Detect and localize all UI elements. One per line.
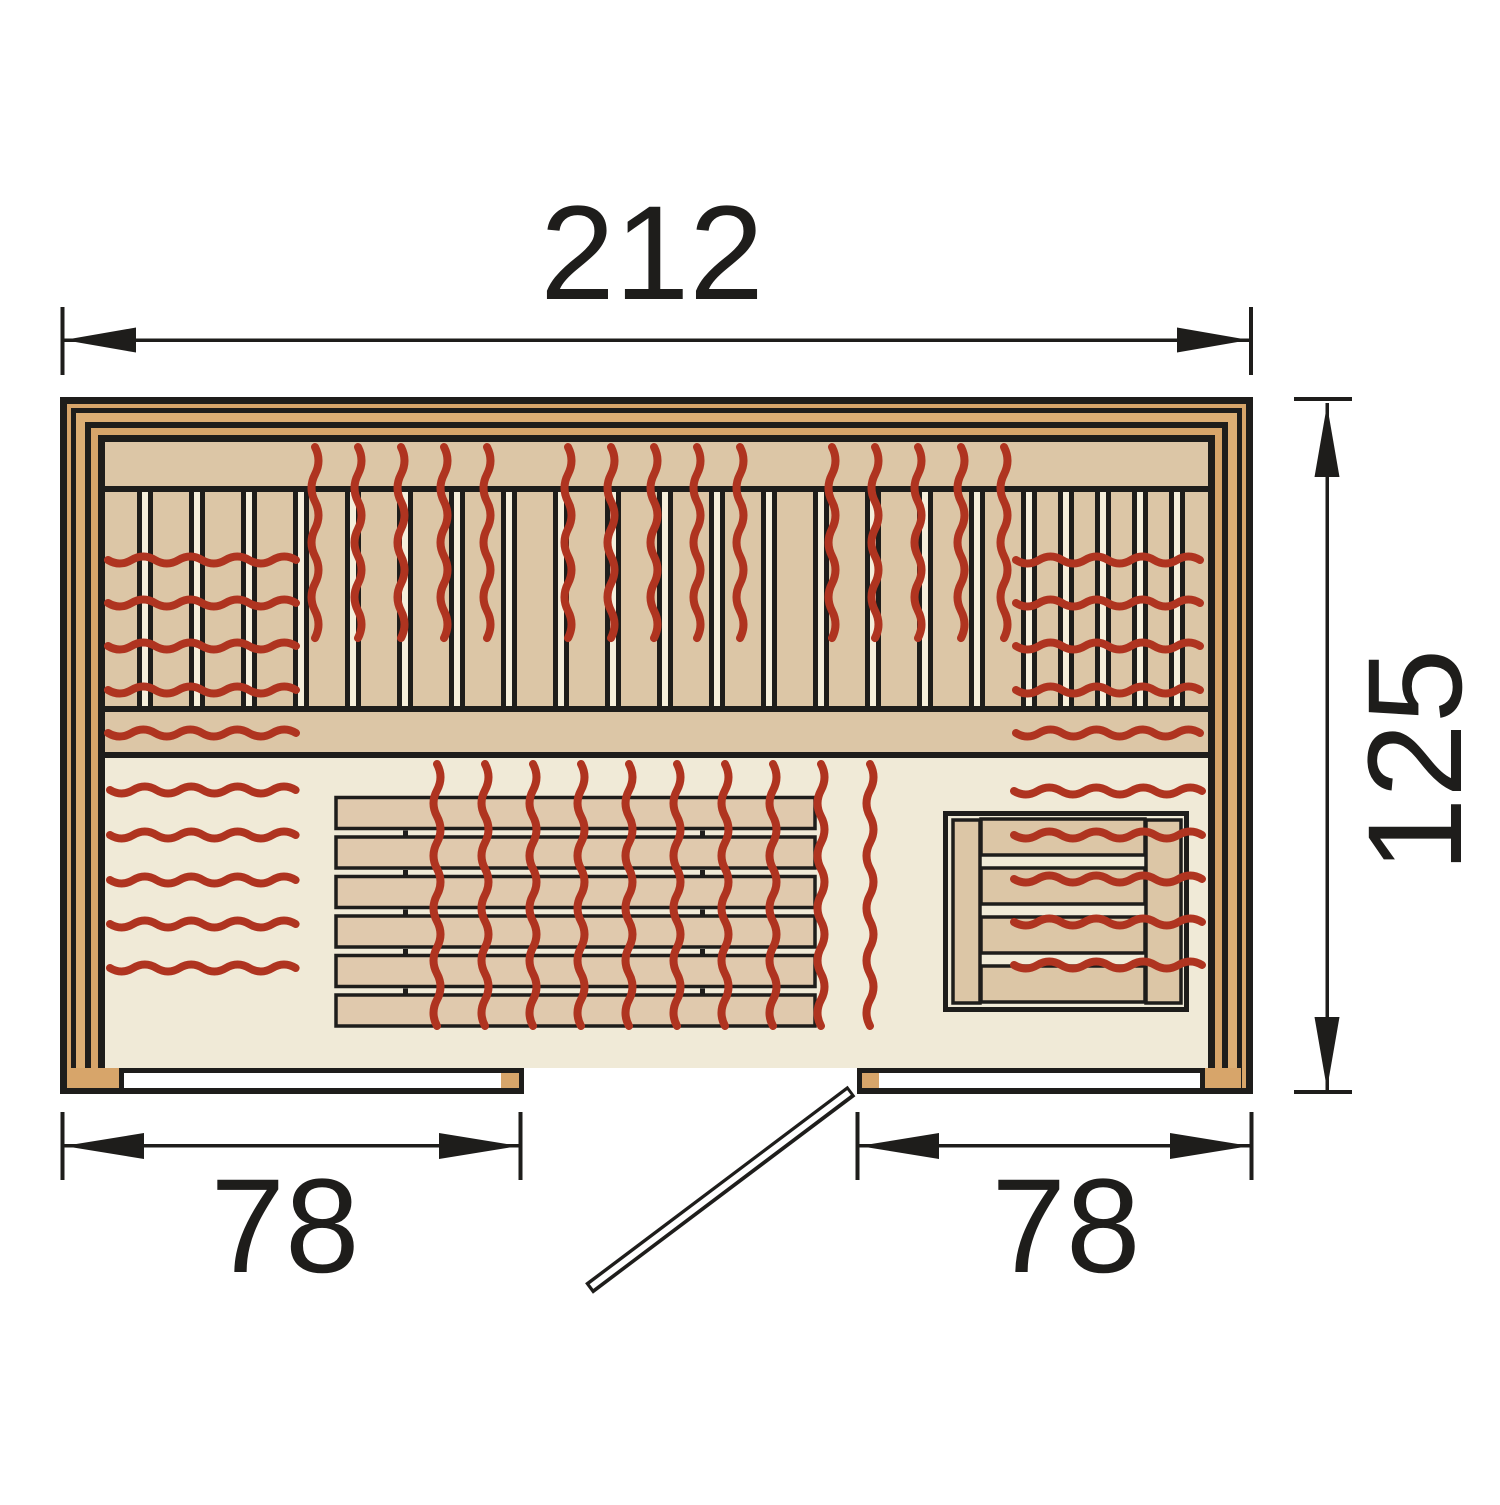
svg-text:125: 125 — [1341, 649, 1490, 873]
svg-text:78: 78 — [210, 1152, 359, 1301]
svg-text:212: 212 — [540, 179, 764, 328]
svg-text:78: 78 — [991, 1152, 1140, 1301]
